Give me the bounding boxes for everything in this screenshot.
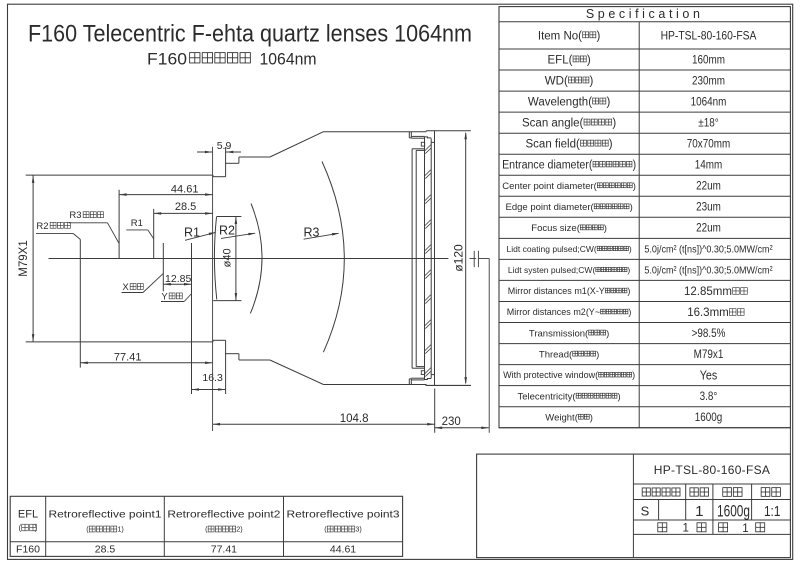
svg-text:22um: 22um (696, 181, 721, 193)
svg-text:Scan angle(: Scan angle( (522, 118, 584, 130)
svg-text:R2: R2 (219, 224, 235, 238)
svg-text:44.61: 44.61 (330, 544, 356, 556)
svg-text:1064nm: 1064nm (691, 97, 727, 109)
svg-text:70x70mm: 70x70mm (687, 139, 730, 151)
svg-text:Wavelength(: Wavelength( (528, 97, 592, 109)
svg-text:5.0j/cm² (t[ns])^0.30;5.0MW/cm: 5.0j/cm² (t[ns])^0.30;5.0MW/cm² (644, 265, 773, 277)
svg-text:12.85: 12.85 (165, 273, 191, 285)
svg-text:±18°: ±18° (698, 118, 718, 130)
svg-text:28.5: 28.5 (175, 201, 196, 213)
svg-text:1: 1 (695, 503, 703, 520)
svg-text:104.8: 104.8 (340, 413, 369, 425)
svg-text:): ) (590, 412, 593, 423)
svg-text:28.5: 28.5 (95, 544, 116, 556)
svg-text:R3: R3 (69, 210, 81, 221)
svg-text:M79x1: M79x1 (694, 349, 724, 361)
svg-text:2): 2) (236, 525, 242, 534)
svg-text:Y: Y (161, 291, 168, 302)
svg-text:3): 3) (355, 525, 361, 534)
svg-text:WD(: WD( (545, 76, 568, 88)
svg-text:Telecentricity(: Telecentricity( (518, 391, 577, 402)
svg-text:230: 230 (442, 416, 461, 428)
svg-text:R2: R2 (36, 221, 48, 232)
svg-text:R3: R3 (304, 226, 320, 240)
svg-text:F160: F160 (16, 544, 40, 556)
svg-text:X: X (122, 282, 129, 293)
svg-text:): ) (590, 76, 594, 88)
svg-text:5.0j/cm² (t[ns])^0.30;5.0MW/cm: 5.0j/cm² (t[ns])^0.30;5.0MW/cm² (644, 243, 773, 255)
svg-text:Center point diameter(: Center point diameter( (502, 181, 597, 192)
svg-text:): ) (632, 370, 635, 380)
svg-text:): ) (587, 54, 591, 66)
svg-text:HP-TSL-80-160-FSA: HP-TSL-80-160-FSA (654, 463, 770, 477)
svg-text:1064nm: 1064nm (260, 50, 317, 69)
svg-text:Retroreflective point3: Retroreflective point3 (287, 509, 400, 521)
svg-text:R1: R1 (184, 226, 200, 240)
svg-text:S: S (641, 504, 650, 519)
svg-text:Focus size(: Focus size( (531, 223, 580, 234)
svg-text:Transmission(: Transmission( (529, 328, 589, 339)
svg-text:ø120: ø120 (451, 244, 465, 272)
svg-text:R1: R1 (131, 218, 143, 229)
svg-text:): ) (607, 97, 611, 109)
svg-text:1: 1 (742, 523, 748, 535)
svg-text:): ) (628, 307, 631, 317)
svg-text:16.3mm: 16.3mm (687, 307, 729, 319)
svg-text:): ) (629, 244, 632, 254)
svg-text:): ) (633, 160, 637, 172)
svg-text:1:1: 1:1 (764, 504, 781, 520)
svg-text:): ) (609, 139, 613, 151)
svg-text:M79X1: M79X1 (18, 240, 30, 276)
svg-text:EFL: EFL (18, 509, 38, 521)
svg-text:): ) (630, 202, 633, 213)
svg-text:44.61: 44.61 (171, 183, 199, 195)
svg-text:Lidt systen pulsed;CW(: Lidt systen pulsed;CW( (508, 265, 596, 275)
svg-text:): ) (604, 223, 607, 234)
svg-text:F160 Telecentric F-ehta quartz: F160 Telecentric F-ehta quartz lenses 10… (28, 21, 472, 48)
svg-text:F160: F160 (147, 50, 187, 69)
svg-text:>98.5%: >98.5% (692, 328, 726, 340)
svg-text:1600g: 1600g (695, 412, 723, 424)
svg-text:1600g: 1600g (717, 503, 750, 521)
svg-text:77.41: 77.41 (114, 351, 142, 363)
svg-text:Mirror distances m2(Y~: Mirror distances m2(Y~ (507, 307, 600, 317)
svg-text:230mm: 230mm (692, 76, 725, 88)
svg-text:): ) (606, 328, 609, 339)
svg-text:Edge point diameter(: Edge point diameter( (506, 202, 595, 213)
svg-text:): ) (618, 391, 621, 402)
svg-text:HP-TSL-80-160-FSA: HP-TSL-80-160-FSA (661, 29, 757, 43)
svg-text:Specification: Specification (586, 7, 704, 21)
svg-text:23um: 23um (696, 202, 721, 214)
svg-text:3.8°: 3.8° (700, 391, 718, 403)
svg-text:): ) (633, 181, 636, 192)
svg-text:): ) (612, 118, 616, 130)
svg-text:EFL(: EFL( (548, 54, 573, 66)
svg-text:160mm: 160mm (692, 54, 725, 66)
svg-text:22um: 22um (696, 223, 721, 235)
svg-text:Retroreflective point2: Retroreflective point2 (167, 509, 280, 521)
svg-text:Yes: Yes (700, 368, 718, 382)
svg-text:): ) (597, 30, 601, 42)
svg-text:Entrance diameter(: Entrance diameter( (502, 160, 592, 172)
svg-text:Mirror distances m1(X-Y: Mirror distances m1(X-Y (508, 286, 605, 296)
svg-text:Scan field(: Scan field( (526, 139, 581, 151)
svg-text:Retroreflective point1: Retroreflective point1 (49, 509, 162, 521)
svg-text:1: 1 (682, 522, 688, 534)
svg-text:14mm: 14mm (695, 160, 723, 172)
svg-text:With protective window(: With protective window( (503, 370, 598, 380)
svg-text:Weight(: Weight( (545, 412, 578, 423)
svg-text:Thread(: Thread( (539, 349, 573, 360)
svg-text:): ) (35, 524, 38, 533)
svg-text:77.41: 77.41 (211, 544, 237, 556)
svg-text:Item No(: Item No( (538, 30, 582, 42)
svg-text:1): 1) (117, 525, 123, 534)
svg-text:): ) (627, 265, 630, 275)
svg-text:): ) (627, 286, 630, 296)
svg-text:(: ( (19, 524, 22, 533)
svg-text:): ) (596, 349, 599, 360)
svg-text:12.85mm: 12.85mm (684, 286, 732, 298)
svg-text:ø40: ø40 (222, 248, 234, 267)
svg-text:5.9: 5.9 (217, 140, 232, 152)
svg-text:Lidt coating pulsed;CW(: Lidt coating pulsed;CW( (507, 244, 597, 254)
